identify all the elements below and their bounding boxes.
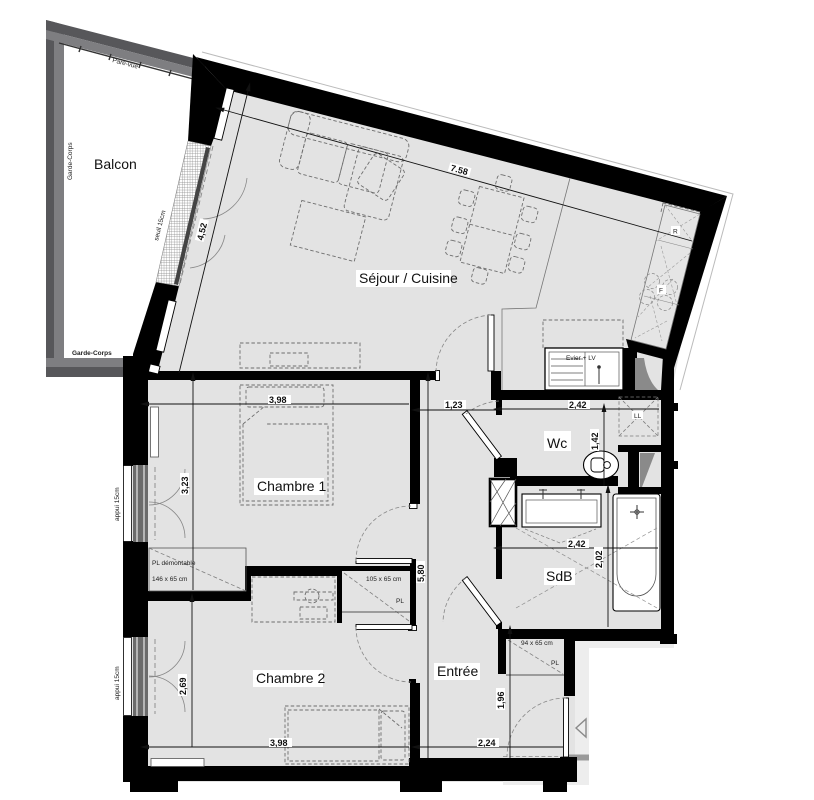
svg-text:appui 15cm: appui 15cm [114, 487, 121, 521]
svg-text:3,98: 3,98 [269, 395, 287, 405]
svg-text:Séjour / Cuisine: Séjour / Cuisine [359, 270, 458, 286]
svg-text:Chambre 1: Chambre 1 [257, 478, 326, 494]
svg-text:SdB: SdB [546, 568, 572, 584]
svg-text:PL démontable: PL démontable [152, 560, 196, 567]
svg-text:2,42: 2,42 [568, 539, 586, 549]
svg-text:2,02: 2,02 [594, 550, 604, 568]
svg-text:F: F [659, 288, 663, 295]
svg-text:105 x 65 cm: 105 x 65 cm [366, 576, 401, 583]
svg-text:Wc: Wc [547, 435, 567, 451]
svg-text:94 x 65 cm: 94 x 65 cm [521, 640, 553, 647]
svg-text:PL: PL [396, 598, 404, 605]
svg-text:LL: LL [634, 413, 642, 420]
svg-text:1,42: 1,42 [590, 432, 600, 450]
svg-text:1,96: 1,96 [496, 691, 506, 709]
svg-text:3,98: 3,98 [270, 738, 288, 748]
svg-text:Entrée: Entrée [437, 663, 478, 679]
svg-text:Chambre 2: Chambre 2 [256, 670, 325, 686]
svg-text:5,80: 5,80 [416, 564, 426, 582]
svg-text:PL: PL [551, 660, 559, 667]
svg-text:Garde-Corps: Garde-Corps [72, 350, 112, 357]
svg-text:2,69: 2,69 [178, 677, 188, 695]
svg-text:146 x 65 cm: 146 x 65 cm [152, 576, 187, 583]
svg-text:Balcon: Balcon [94, 156, 137, 172]
svg-text:2,24: 2,24 [478, 738, 496, 748]
svg-text:Evier + LV: Evier + LV [566, 355, 596, 362]
svg-text:1,23: 1,23 [445, 400, 463, 410]
svg-text:2,42: 2,42 [569, 400, 587, 410]
svg-text:3,23: 3,23 [180, 476, 190, 494]
svg-text:Garde-Corps: Garde-Corps [67, 142, 74, 180]
svg-text:appui 15cm: appui 15cm [114, 666, 121, 700]
svg-text:R: R [673, 229, 678, 236]
